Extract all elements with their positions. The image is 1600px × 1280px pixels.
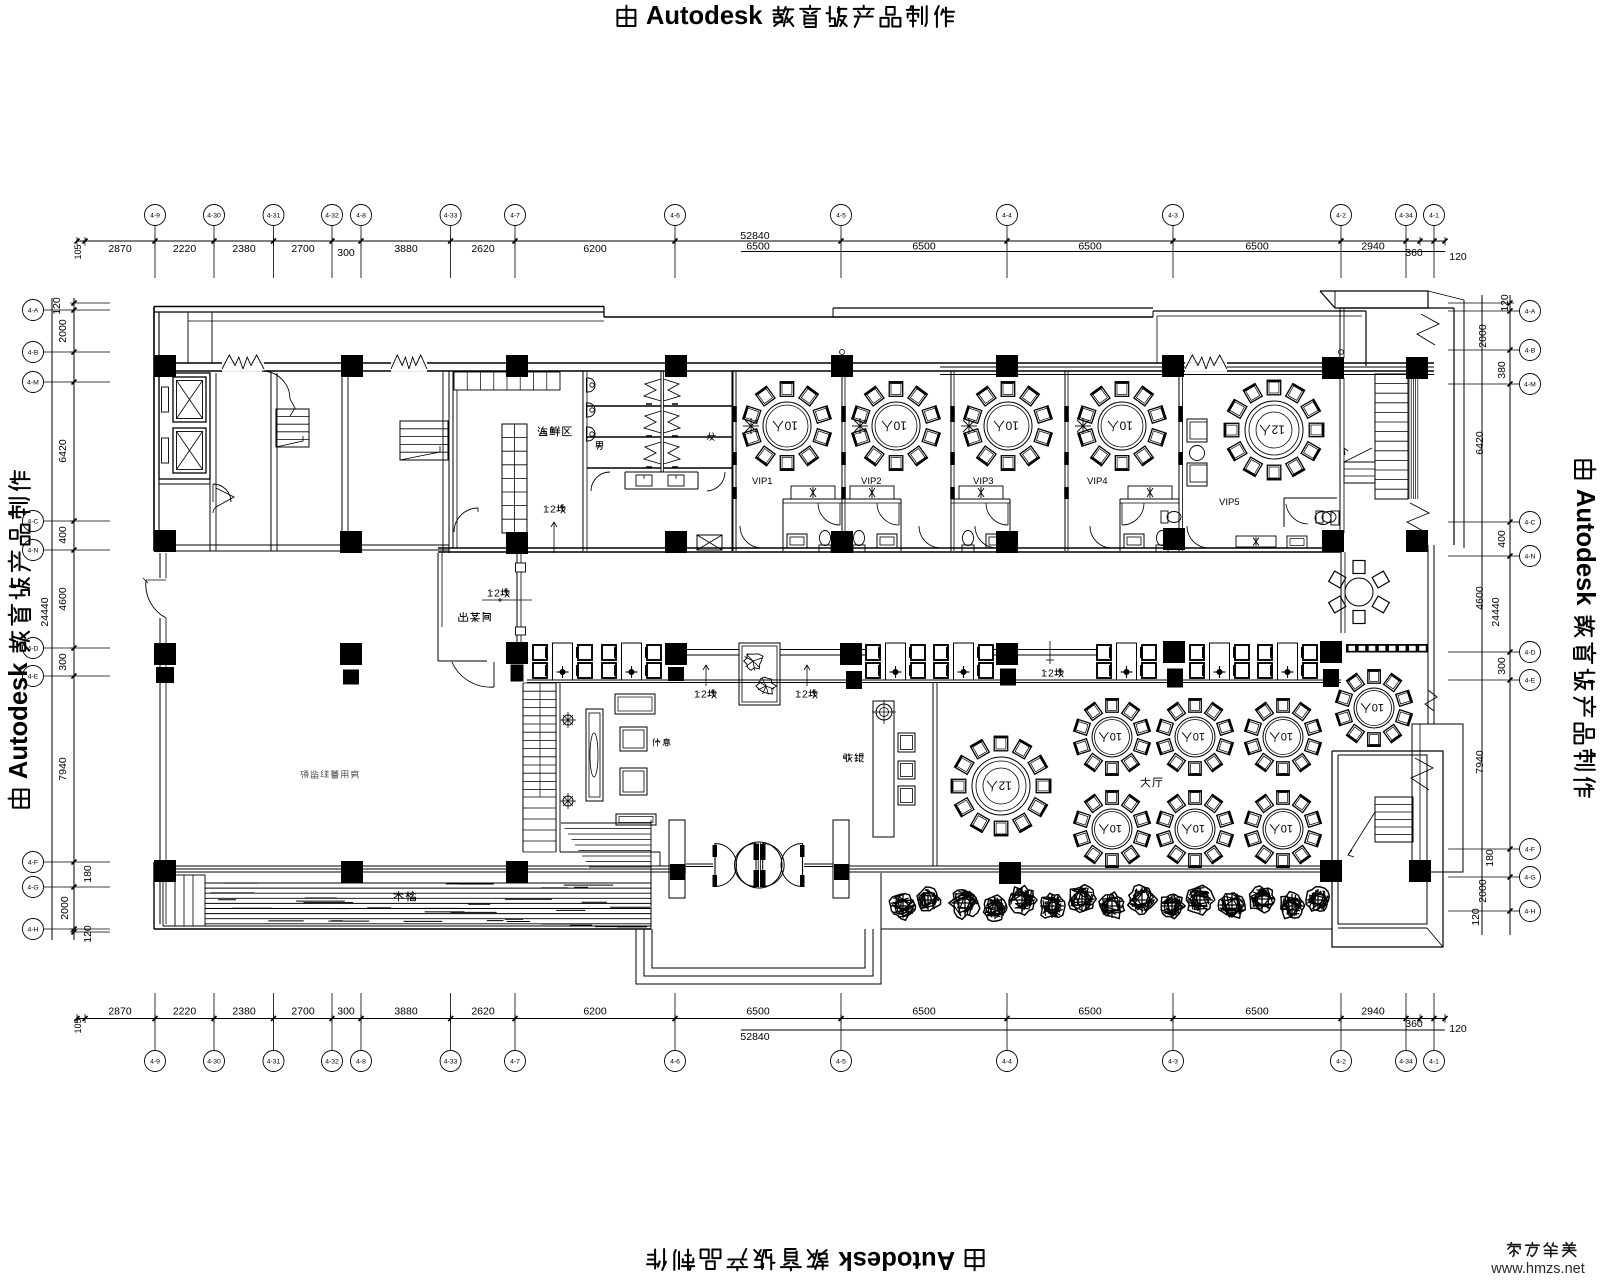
svg-text:12: 12 xyxy=(998,779,1012,793)
svg-text:4-31: 4-31 xyxy=(267,1058,281,1065)
svg-text:3880: 3880 xyxy=(394,243,418,255)
svg-text:4-30: 4-30 xyxy=(207,1058,221,1065)
svg-text:2220: 2220 xyxy=(173,1006,197,1018)
svg-text:4-31: 4-31 xyxy=(267,212,281,219)
svg-text:VIP1: VIP1 xyxy=(752,476,773,487)
svg-text:4-8: 4-8 xyxy=(356,212,366,219)
svg-text:2380: 2380 xyxy=(232,1006,256,1018)
svg-text:4-5: 4-5 xyxy=(836,212,846,219)
svg-text:www.hmzs.net: www.hmzs.net xyxy=(1490,1261,1584,1277)
svg-text:2000: 2000 xyxy=(1477,879,1489,903)
svg-text:2000: 2000 xyxy=(1477,324,1489,348)
svg-text:2: 2 xyxy=(802,689,808,701)
svg-text:VIP3: VIP3 xyxy=(973,476,994,487)
svg-text:4-M: 4-M xyxy=(27,379,39,386)
svg-text:4-3: 4-3 xyxy=(1168,1058,1178,1065)
svg-text:4-6: 4-6 xyxy=(670,212,680,219)
svg-text:10: 10 xyxy=(1281,730,1293,742)
svg-text:4-8: 4-8 xyxy=(356,1058,366,1065)
svg-text:4-34: 4-34 xyxy=(1399,1058,1413,1065)
svg-text:2870: 2870 xyxy=(108,243,132,255)
svg-text:120: 120 xyxy=(1499,294,1511,312)
svg-text:4-F: 4-F xyxy=(28,859,38,866)
svg-text:6500: 6500 xyxy=(1078,1006,1102,1018)
svg-text:52840: 52840 xyxy=(740,230,769,242)
svg-text:4-34: 4-34 xyxy=(1399,212,1413,219)
svg-text:180: 180 xyxy=(82,865,94,883)
svg-text:2: 2 xyxy=(550,504,556,516)
svg-text:4-4: 4-4 xyxy=(1002,1058,1012,1065)
svg-text:2620: 2620 xyxy=(471,1006,495,1018)
svg-text:4-2: 4-2 xyxy=(1336,212,1346,219)
svg-text:6420: 6420 xyxy=(1474,431,1486,455)
svg-text:4-3: 4-3 xyxy=(1168,212,1178,219)
svg-text:4-1: 4-1 xyxy=(1429,212,1439,219)
svg-text:120: 120 xyxy=(1470,908,1482,926)
svg-text::: : xyxy=(1045,668,1048,680)
svg-text:4-1: 4-1 xyxy=(1429,1058,1439,1065)
svg-text:4-32: 4-32 xyxy=(325,212,339,219)
svg-text:400: 400 xyxy=(57,526,69,544)
svg-text:4-9: 4-9 xyxy=(150,1058,160,1065)
svg-text:6420: 6420 xyxy=(57,439,69,463)
svg-text:10: 10 xyxy=(1281,822,1293,834)
svg-text:2700: 2700 xyxy=(291,1006,315,1018)
svg-text:4-32: 4-32 xyxy=(325,1058,339,1065)
svg-text:10: 10 xyxy=(1193,730,1205,742)
svg-text:2700: 2700 xyxy=(291,243,315,255)
svg-text:24440: 24440 xyxy=(1490,597,1502,626)
svg-text:3880: 3880 xyxy=(394,1006,418,1018)
svg-text:24440: 24440 xyxy=(39,597,51,626)
svg-text:4-5: 4-5 xyxy=(836,1058,846,1065)
svg-text:105: 105 xyxy=(73,244,83,259)
svg-text:300: 300 xyxy=(337,1006,355,1018)
svg-text:380: 380 xyxy=(1496,361,1508,379)
svg-text:400: 400 xyxy=(1496,530,1508,548)
svg-text:10: 10 xyxy=(1110,822,1122,834)
svg-text:4-G: 4-G xyxy=(1524,874,1535,881)
svg-text:4-C: 4-C xyxy=(28,518,39,525)
svg-text:4-D: 4-D xyxy=(1525,649,1536,656)
svg-text:4-4: 4-4 xyxy=(1002,212,1012,219)
svg-text:360: 360 xyxy=(1405,247,1423,259)
svg-text:10: 10 xyxy=(784,419,798,433)
svg-text:2220: 2220 xyxy=(173,243,197,255)
svg-text:4600: 4600 xyxy=(57,587,69,611)
svg-text:6500: 6500 xyxy=(912,241,936,253)
svg-text:6500: 6500 xyxy=(746,241,770,253)
svg-text:Autodesk: Autodesk xyxy=(838,1246,955,1274)
svg-text:10: 10 xyxy=(1372,701,1384,713)
svg-text:2940: 2940 xyxy=(1361,1006,1385,1018)
svg-text:2000: 2000 xyxy=(57,319,69,343)
svg-text:2: 2 xyxy=(1048,668,1054,680)
svg-text:2870: 2870 xyxy=(108,1006,132,1018)
svg-text:120: 120 xyxy=(1449,251,1467,263)
svg-text:300: 300 xyxy=(57,653,69,671)
svg-text:7940: 7940 xyxy=(1474,750,1486,774)
svg-text:4-6: 4-6 xyxy=(670,1058,680,1065)
svg-text:10: 10 xyxy=(1110,730,1122,742)
svg-text:4-N: 4-N xyxy=(28,547,39,554)
svg-text:6500: 6500 xyxy=(1245,241,1269,253)
svg-text:2380: 2380 xyxy=(232,243,256,255)
svg-text:Autodesk: Autodesk xyxy=(646,2,763,30)
svg-text:6500: 6500 xyxy=(1078,241,1102,253)
svg-text:6500: 6500 xyxy=(746,1006,770,1018)
svg-text:2: 2 xyxy=(494,588,500,600)
svg-text:4-7: 4-7 xyxy=(510,212,520,219)
svg-text:6200: 6200 xyxy=(583,243,607,255)
svg-text:4-A: 4-A xyxy=(28,307,39,314)
svg-text::: : xyxy=(799,689,802,701)
svg-text:4-H: 4-H xyxy=(28,926,39,933)
svg-text:4-B: 4-B xyxy=(1525,347,1536,354)
svg-text:52840: 52840 xyxy=(740,1031,769,1043)
svg-text:Autodesk: Autodesk xyxy=(1571,489,1599,606)
svg-text:VIP2: VIP2 xyxy=(861,476,882,487)
svg-text:2000: 2000 xyxy=(59,896,71,920)
svg-text:4-M: 4-M xyxy=(1524,381,1536,388)
svg-text:10: 10 xyxy=(1119,419,1133,433)
svg-text:4-30: 4-30 xyxy=(207,212,221,219)
svg-text:180: 180 xyxy=(1484,849,1496,867)
svg-text:2620: 2620 xyxy=(471,243,495,255)
svg-text:4600: 4600 xyxy=(1474,586,1486,610)
svg-text:10: 10 xyxy=(1193,822,1205,834)
svg-text:2940: 2940 xyxy=(1361,241,1385,253)
svg-text:4-C: 4-C xyxy=(1525,519,1536,526)
svg-text:10: 10 xyxy=(893,419,907,433)
svg-text:7940: 7940 xyxy=(57,757,69,781)
svg-text:VIP4: VIP4 xyxy=(1087,476,1108,487)
svg-text:105: 105 xyxy=(73,1018,83,1033)
svg-text:4-7: 4-7 xyxy=(510,1058,520,1065)
svg-text:4-E: 4-E xyxy=(28,673,39,680)
svg-text:4-F: 4-F xyxy=(1525,846,1535,853)
svg-text:4-33: 4-33 xyxy=(444,212,458,219)
svg-text:4-N: 4-N xyxy=(1525,553,1536,560)
svg-text:4-33: 4-33 xyxy=(444,1058,458,1065)
svg-text:4-G: 4-G xyxy=(27,884,38,891)
svg-text:6500: 6500 xyxy=(1245,1006,1269,1018)
svg-text:12: 12 xyxy=(1271,423,1285,437)
svg-text:4-B: 4-B xyxy=(28,349,39,356)
svg-text:300: 300 xyxy=(1496,657,1508,675)
svg-text::: : xyxy=(698,689,701,701)
svg-text::: : xyxy=(491,588,494,600)
svg-text:4-2: 4-2 xyxy=(1336,1058,1346,1065)
svg-text:4-A: 4-A xyxy=(1525,308,1536,315)
svg-text::: : xyxy=(547,504,550,516)
svg-text:4-D: 4-D xyxy=(28,645,39,652)
svg-text:4-E: 4-E xyxy=(1525,677,1536,684)
svg-text:360: 360 xyxy=(1405,1018,1423,1030)
svg-text:300: 300 xyxy=(337,247,355,259)
svg-text:2: 2 xyxy=(701,689,707,701)
svg-text:120: 120 xyxy=(51,297,63,315)
svg-text:120: 120 xyxy=(1449,1023,1467,1035)
svg-text:6500: 6500 xyxy=(912,1006,936,1018)
svg-text:4-9: 4-9 xyxy=(150,212,160,219)
svg-text:VIP5: VIP5 xyxy=(1219,497,1240,508)
svg-text:6200: 6200 xyxy=(583,1006,607,1018)
svg-text:4-H: 4-H xyxy=(1525,908,1536,915)
svg-text:120: 120 xyxy=(82,925,94,943)
svg-text:10: 10 xyxy=(1005,419,1019,433)
